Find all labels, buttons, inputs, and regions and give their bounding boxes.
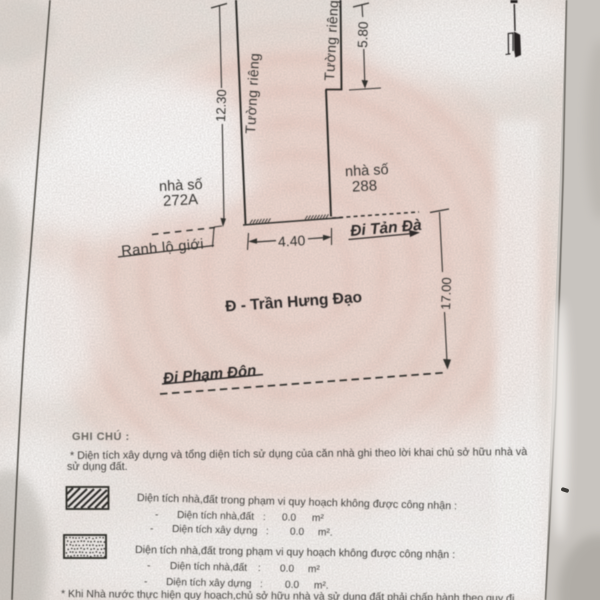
svg-text:12.30: 12.30 bbox=[213, 89, 229, 122]
svg-text:288: 288 bbox=[352, 177, 378, 195]
svg-text:4.40: 4.40 bbox=[278, 232, 306, 249]
svg-text:17.00: 17.00 bbox=[438, 277, 454, 310]
svg-text:5.80: 5.80 bbox=[355, 21, 371, 48]
svg-text:GHI CHÚ :: GHI CHÚ : bbox=[72, 430, 130, 443]
svg-text:sử dụng đất.: sử dụng đất. bbox=[67, 461, 128, 473]
svg-text:272A: 272A bbox=[163, 191, 199, 210]
